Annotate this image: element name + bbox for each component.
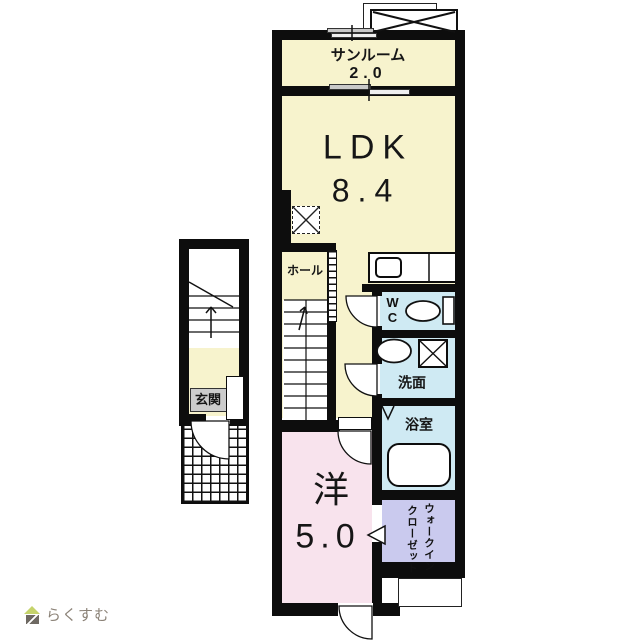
external-stairs-arrow [206, 307, 216, 338]
western-room-label: 洋 [313, 470, 349, 510]
house-body-icon [26, 615, 39, 624]
wall-wc-washroom [380, 330, 455, 338]
floor-plan: サンルーム 2.0 LDK 8.4 ホール WC 洗面 浴室 洋 5.0 ウォー… [0, 0, 640, 640]
western-room-size: 5.0 [295, 518, 360, 555]
lower-right-notch [398, 578, 462, 607]
stairblock-wall-left [179, 239, 189, 426]
wall-plumbing-1 [372, 284, 382, 296]
external-stairs-breakline [189, 282, 233, 307]
house-icon [24, 606, 41, 624]
external-stairs [189, 296, 239, 332]
ldk-label: LDK [323, 129, 413, 166]
house-roof-icon [24, 606, 40, 614]
sunroom-size: 2.0 [349, 65, 386, 83]
walk-in-closet-label-line2: クローゼット [405, 505, 420, 574]
wall-washroom-bath [372, 398, 455, 406]
washroom-label: 洗面 [398, 375, 426, 390]
wall-bottom-left [272, 603, 338, 616]
entrance-door-panel [226, 376, 244, 420]
kitchen-sink [375, 257, 402, 278]
door-threshold [338, 417, 372, 430]
walk-in-closet-label-line1: ウォークイン [422, 503, 437, 572]
stairs-floor [283, 300, 327, 420]
closet-door-gap [372, 505, 382, 542]
sunroom-slider-bar [369, 89, 410, 95]
exterior-door-arc [339, 606, 372, 639]
stair-railing [328, 250, 337, 322]
fridge-space [292, 206, 320, 234]
ldk-size: 8.4 [332, 173, 400, 208]
wc-label: WC [385, 295, 400, 325]
wall-western-top [282, 420, 340, 432]
wall-left [272, 30, 282, 616]
site-logo-text: らくすむ [46, 604, 110, 625]
wall-bath-closet [372, 490, 455, 500]
site-logo[interactable]: らくすむ [24, 604, 110, 625]
washer-pan [418, 339, 448, 368]
wall-bottom-mid [373, 603, 400, 616]
sunroom-window-bar [331, 33, 377, 38]
wall-fridge-stub [282, 190, 291, 243]
wall-right [455, 30, 465, 578]
bathroom-label: 浴室 [405, 417, 433, 432]
entrance-porch-tiles [181, 424, 249, 504]
sunroom-label: サンルーム [331, 48, 406, 65]
hall-label: ホール [287, 264, 323, 277]
bathtub [387, 443, 451, 487]
sunroom-slider-bar [329, 84, 371, 90]
wall-western-right-upper [372, 432, 382, 505]
entrance-label: 玄関 [195, 393, 221, 407]
